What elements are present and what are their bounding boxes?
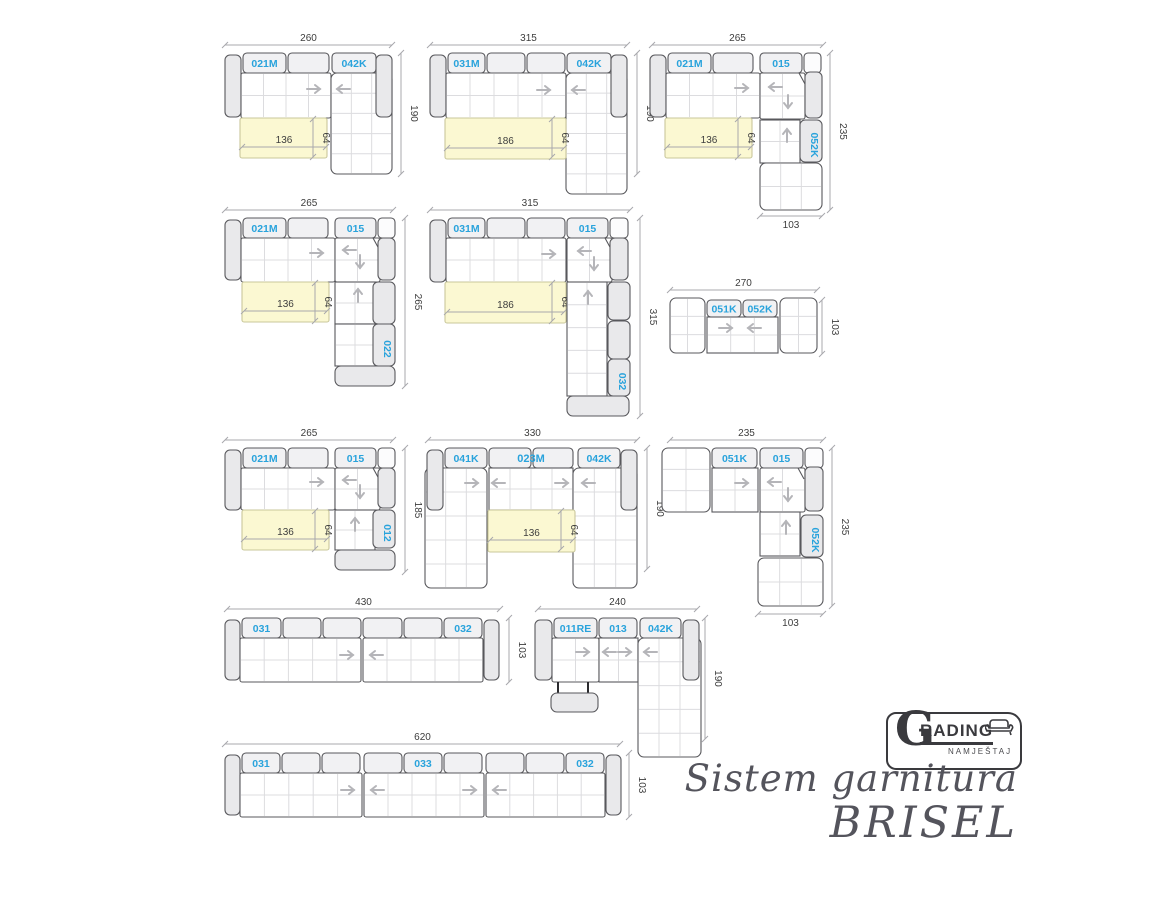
armrest xyxy=(611,55,627,117)
back-cushion xyxy=(322,753,360,773)
armrest xyxy=(650,55,666,117)
armrest xyxy=(378,468,395,508)
armrest xyxy=(535,620,552,680)
config-021M-015-012-265x185: 265185021M01513664012 xyxy=(222,428,423,575)
page-title: Sistem garnitura BRISEL xyxy=(685,758,1018,846)
module-label: 015 xyxy=(773,453,791,465)
dimension-value: 136 xyxy=(276,135,293,146)
seat xyxy=(805,448,823,468)
back-cushion xyxy=(288,218,328,238)
back-cushion xyxy=(527,218,565,238)
dimension-value: 185 xyxy=(412,502,423,519)
module-label: 021M xyxy=(251,453,278,465)
module-label: 023M xyxy=(517,453,545,465)
back-cushion xyxy=(288,53,329,73)
config-051K-015-052K-235x235: 235235103051K015052K xyxy=(662,428,850,629)
module-label: 015 xyxy=(347,453,365,465)
seat xyxy=(804,53,821,73)
config-031-032-430x103: 430103031032 xyxy=(224,597,527,685)
dimension-value: 235 xyxy=(839,519,850,536)
module-label: 011RE xyxy=(560,623,592,635)
back-cushion xyxy=(527,53,565,73)
back-cushion xyxy=(283,618,321,638)
dimension-value: 190 xyxy=(408,105,419,122)
module-label: 013 xyxy=(609,623,627,635)
config-021M-015-052K-265x235: 265235103021M01513664052K xyxy=(649,33,848,231)
dimension-value: 64 xyxy=(559,132,570,144)
module-label: 033 xyxy=(414,758,432,770)
back-cushion xyxy=(526,753,564,773)
config-031M-042K-315x190: 315190031M042K18664 xyxy=(427,33,655,194)
back-cushion xyxy=(486,753,524,773)
dimension-value: 315 xyxy=(647,309,658,326)
armrest xyxy=(225,55,241,117)
armrest xyxy=(805,467,823,511)
armrest xyxy=(225,620,240,680)
page-title-line1: Sistem garnitura xyxy=(685,758,1018,801)
armrest xyxy=(606,755,621,815)
dimension-value: 186 xyxy=(497,136,514,147)
module-label: 052K xyxy=(747,304,773,316)
dimension-value: 136 xyxy=(523,528,540,539)
config-021M-042K-260x190: 260190021M042K13664 xyxy=(222,33,419,177)
module-label: 051K xyxy=(722,453,748,465)
catalog-page: 260190021M042K13664315190031M042K1866426… xyxy=(0,0,1156,900)
back-cushion xyxy=(404,618,442,638)
back-cushion xyxy=(487,218,525,238)
config-051K-052K-270x103: 270103051K052K xyxy=(667,278,840,357)
seat xyxy=(610,218,628,238)
dimension-value: 136 xyxy=(701,135,718,146)
config-041K-023M-042K-330x190: 330190041K023M042K13664 xyxy=(425,428,665,588)
module-label: 015 xyxy=(347,223,365,235)
dimension-value: 330 xyxy=(524,428,541,439)
armrest xyxy=(683,620,699,680)
back-cushion xyxy=(444,753,482,773)
armrest xyxy=(551,693,598,712)
back-cushion xyxy=(487,53,525,73)
dimension-value: 235 xyxy=(837,123,848,140)
module-label: 021M xyxy=(676,58,703,70)
back-cushion xyxy=(288,448,328,468)
dimension-value: 64 xyxy=(568,524,579,536)
config-021M-015-022-265x265: 265265021M01513664022 xyxy=(222,198,423,389)
dimension-value: 315 xyxy=(522,198,539,209)
armrest xyxy=(608,321,630,359)
module-label: 021M xyxy=(251,223,278,235)
armrest xyxy=(335,366,395,386)
module-label: 051K xyxy=(711,304,737,316)
module-label: 022 xyxy=(381,340,393,358)
module-label: 031 xyxy=(253,623,271,635)
armrest xyxy=(225,755,240,815)
armrest xyxy=(378,238,395,280)
armrest xyxy=(430,220,446,282)
armrest xyxy=(430,55,446,117)
dimension-value: 270 xyxy=(735,278,752,289)
module-label: 015 xyxy=(579,223,597,235)
module-label: 052K xyxy=(808,132,820,158)
armrest xyxy=(484,620,499,680)
dimension-value: 103 xyxy=(783,220,800,231)
dimension-value: 240 xyxy=(609,597,626,608)
armrest xyxy=(225,220,241,280)
module-label: 032 xyxy=(576,758,594,770)
armrest xyxy=(376,55,392,117)
armrest xyxy=(427,450,443,510)
dimension-value: 103 xyxy=(829,319,840,336)
dimension-value: 260 xyxy=(300,33,317,44)
config-031M-015-032-315x315: 315315031M01518664032 xyxy=(427,198,658,419)
armrest xyxy=(608,282,630,320)
seat xyxy=(378,448,395,468)
module-label: 042K xyxy=(586,453,612,465)
armrest xyxy=(335,550,395,570)
module-label: 042K xyxy=(576,58,602,70)
dimension-value: 136 xyxy=(277,527,294,538)
module-label: 041K xyxy=(453,453,479,465)
dimension-value: 64 xyxy=(322,524,333,536)
dimension-value: 190 xyxy=(712,670,723,687)
module-label: 042K xyxy=(648,623,674,635)
dimension-value: 235 xyxy=(738,428,755,439)
dimension-value: 265 xyxy=(412,294,423,311)
armrest xyxy=(610,238,628,280)
seat xyxy=(378,218,395,238)
back-cushion xyxy=(364,753,402,773)
dimension-value: 64 xyxy=(322,296,333,308)
module-label: 031 xyxy=(252,758,270,770)
dimension-value: 430 xyxy=(355,597,372,608)
brand-logo-text: RADING xyxy=(920,721,993,745)
module-label: 052K xyxy=(809,527,821,553)
config-031-033-032-620x103: 620103031033032 xyxy=(222,732,647,820)
armrest xyxy=(621,450,637,510)
module-label: 032 xyxy=(616,373,628,391)
dimension-value: 315 xyxy=(520,33,537,44)
back-cushion xyxy=(363,618,402,638)
back-cushion xyxy=(713,53,753,73)
config-011RE-013-042K-240x190: 240190011RE013042K xyxy=(535,597,723,757)
module-label: 021M xyxy=(251,58,278,70)
dimension-value: 103 xyxy=(782,618,799,629)
sofa-icon xyxy=(985,717,1015,737)
module-label: 031M xyxy=(453,223,480,235)
dimension-value: 265 xyxy=(729,33,746,44)
module-label: 031M xyxy=(453,58,480,70)
brand-logo-subtitle: NAMJEŠTAJ xyxy=(948,747,1012,756)
dimension-value: 620 xyxy=(414,732,431,743)
page-title-line2: BRISEL xyxy=(685,801,1018,846)
armrest xyxy=(225,450,241,510)
module-label: 015 xyxy=(772,58,790,70)
module-label: 012 xyxy=(381,524,393,542)
armrest xyxy=(567,396,629,416)
dimension-value: 136 xyxy=(277,299,294,310)
dimension-value: 103 xyxy=(636,777,647,794)
dimension-value: 186 xyxy=(497,300,514,311)
dimension-value: 64 xyxy=(320,132,331,144)
back-cushion xyxy=(282,753,320,773)
dimension-value: 265 xyxy=(301,198,318,209)
module-label: 042K xyxy=(341,58,367,70)
armrest xyxy=(805,72,822,118)
back-cushion xyxy=(323,618,361,638)
module-label: 032 xyxy=(454,623,472,635)
dimension-value: 265 xyxy=(301,428,318,439)
dimension-value: 103 xyxy=(516,642,527,659)
armrest xyxy=(373,282,395,324)
dimension-value: 64 xyxy=(745,132,756,144)
